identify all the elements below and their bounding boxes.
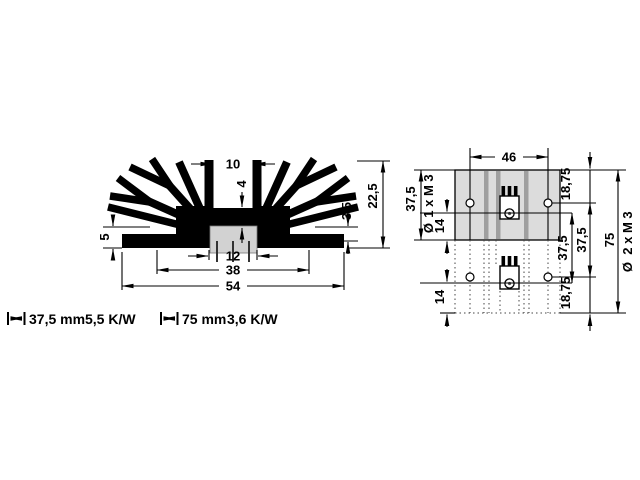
top-view: 46 37,5 1 x M 3 Ø 14 14 18,75 37,5 37,5 … <box>403 148 635 331</box>
dim-overall-width: 54 <box>226 279 241 294</box>
dim-hole-offset-bottom: 14 <box>432 289 447 304</box>
dim-base-step: 3,5 <box>339 202 354 220</box>
length-arrow-icon-2 <box>161 312 178 325</box>
dim-inner-width: 38 <box>226 263 240 278</box>
spec-length-2: 75 mm <box>182 311 226 327</box>
dim-thread-short: 1 x M 3 <box>421 174 436 217</box>
dim-edge-to-hole-top: 18,75 <box>558 168 573 201</box>
dim-edge-to-hole-bottom: 18,75 <box>558 277 573 310</box>
spec-resistance-1: 5,5 K/W <box>85 311 136 327</box>
dim-length-short: 37,5 <box>403 186 418 211</box>
dim-pkg-pitch: 37,5 <box>555 235 570 260</box>
length-arrow-icon-1 <box>8 312 25 325</box>
heatsink-datasheet-drawing: 10 4 3,5 22,5 5 12 38 54 <box>0 0 640 480</box>
dim-slot-width: 10 <box>226 157 240 172</box>
transistor-package-2 <box>500 256 519 289</box>
dim-hole-spacing: 46 <box>502 150 516 165</box>
phi-icon-2: Ø <box>620 262 635 272</box>
dim-thread-long: 2 x M 3 <box>620 211 635 254</box>
dim-flange-height: 5 <box>97 233 112 240</box>
thermal-specs: 37,5 mm 5,5 K/W 75 mm 3,6 K/W <box>8 311 278 327</box>
spec-resistance-2: 3,6 K/W <box>227 311 278 327</box>
dim-hole-pitch: 37,5 <box>574 227 589 252</box>
dim-web-thickness: 4 <box>234 180 249 188</box>
cross-section-view: 10 4 3,5 22,5 5 12 38 54 <box>97 150 390 294</box>
dim-hole-offset-top: 14 <box>432 218 447 233</box>
dim-length-long: 75 <box>602 233 617 247</box>
technical-drawing-canvas: 10 4 3,5 22,5 5 12 38 54 <box>0 0 640 480</box>
dim-overall-height: 22,5 <box>365 183 380 208</box>
dim-contact-width: 12 <box>226 249 240 264</box>
spec-length-1: 37,5 mm <box>29 311 85 327</box>
transistor-package-1 <box>500 186 519 219</box>
